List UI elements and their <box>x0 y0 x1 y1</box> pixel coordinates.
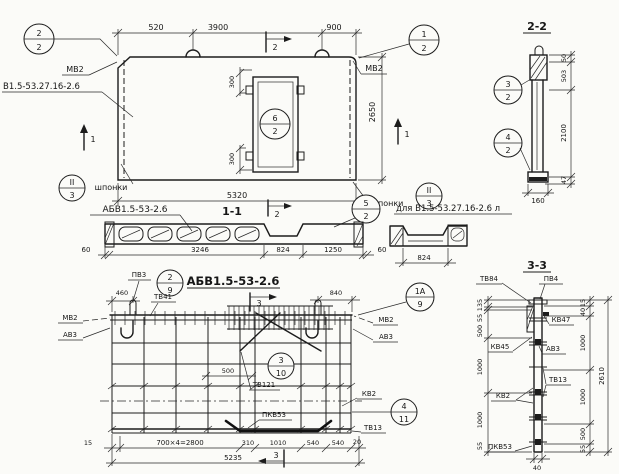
dim-47: 47 <box>560 176 568 184</box>
label-av3-left: АВ3 <box>63 331 77 339</box>
callout-top: II <box>70 178 75 187</box>
dim-left-135: 135 <box>476 299 484 311</box>
callout-bottom: 11 <box>399 415 409 424</box>
callout-1a-9: 1А 9 <box>358 283 434 315</box>
callout-1-2: 1 2 <box>359 25 439 58</box>
label-av3: АВ3 <box>546 345 560 353</box>
cut-mark-2-bottom: 2 <box>268 200 292 219</box>
callout-3-10: 3 10 <box>268 353 294 379</box>
callout-top: 1 <box>421 30 426 39</box>
section-1-1: АБВ1.5-53-2.6 1-1 5 2 для В1.5-53.27.16-… <box>82 195 512 267</box>
dim-left-1000a: 1000 <box>476 359 484 376</box>
label-kv2: КВ2 <box>496 392 510 400</box>
label-pv3: ПВ3 <box>132 271 147 279</box>
section-3-3-title: 3-3 <box>527 259 547 272</box>
dim-500: 500 <box>222 367 234 375</box>
dim-300-bottom: 300 <box>228 153 236 165</box>
label-tv13: ТВ13 <box>548 376 567 384</box>
label-av3-right: АВ3 <box>379 333 393 341</box>
label-kv45: КВ45 <box>491 343 510 351</box>
label-keys-left: шпонки <box>95 183 128 192</box>
dim-left-500: 500 <box>476 325 484 337</box>
dim-right-1000b: 1000 <box>579 389 587 406</box>
callout-bottom: 3 <box>69 191 74 200</box>
label-kv2: КВ2 <box>362 390 376 398</box>
dim-503: 503 <box>560 70 568 82</box>
slab-profile-variant <box>390 225 467 246</box>
callout-4-11: 4 11 <box>352 399 417 425</box>
cut-mark-2-top: 2 <box>266 32 292 52</box>
dim-310: 310 <box>242 439 254 447</box>
callout-top: 3 <box>278 356 283 365</box>
dim-left-55b: 55 <box>476 442 484 450</box>
dim-50: 50 <box>560 54 568 62</box>
dim-460: 460 <box>116 289 128 297</box>
drawing-sheet: 520 3900 900 2 2 1 1 <box>0 0 619 474</box>
engineering-drawing: 520 3900 900 2 2 1 1 <box>0 0 619 474</box>
label-product-mark: В1.5-53.27.16-2.6 <box>3 82 80 92</box>
elevation-title: АБВ1.5-53-2.6 <box>187 274 280 288</box>
lifting-loop-icon <box>315 50 329 57</box>
callout-3-2: 3 2 <box>494 76 531 104</box>
label-tv13: ТВ13 <box>363 424 382 432</box>
dim-20: 20 <box>353 438 361 446</box>
label-mv2-left: МВ2 <box>62 314 77 322</box>
label-pkv53: ПКВ53 <box>262 411 286 419</box>
dim-right-40: 40 <box>579 308 587 316</box>
dim-824-variant: 824 <box>417 254 431 262</box>
dim-left-1000b: 1000 <box>476 412 484 429</box>
callout-bottom: 10 <box>276 369 286 378</box>
dim-824: 824 <box>276 246 290 254</box>
dim-right-500: 500 <box>579 428 587 440</box>
label-mv2-right: МВ2 <box>365 64 382 73</box>
dim-1250: 1250 <box>324 246 342 254</box>
cut-label: 2 <box>272 43 277 52</box>
callout-bottom: 2 <box>36 43 41 52</box>
callout-top: 3 <box>505 80 510 89</box>
dim-300-top: 300 <box>228 76 236 88</box>
cut-label: 1 <box>90 135 95 144</box>
label-tv84: ТВ84 <box>479 275 499 283</box>
dim-5320: 5320 <box>227 191 247 200</box>
plan-view: 520 3900 900 2 2 1 1 <box>2 23 442 219</box>
lifting-loop-icon <box>186 50 200 57</box>
variant-label: для В1.5-53.27.16-2.6 л <box>396 204 500 214</box>
dim-right-1000a: 1000 <box>579 335 587 352</box>
callout-bottom: 9 <box>417 300 422 309</box>
dim-right-15: 15 <box>579 299 587 307</box>
label-pv4: ПВ4 <box>544 275 559 283</box>
cut-label: 3 <box>273 451 278 460</box>
callout-bottom: 2 <box>505 146 510 155</box>
opening: 6 2 300 300 <box>228 67 304 174</box>
cut-mark-3-bottom: 3 <box>258 450 284 467</box>
callout-top: 2 <box>167 273 172 282</box>
cut-mark-1-right: 1 <box>394 118 410 144</box>
callout-bottom: 2 <box>421 44 426 53</box>
panel-outline <box>118 57 356 180</box>
reinforcement-elevation: АБВ1.5-53-2.6 ПВ3 2 9 ТВ41 460 840 МВ2 А… <box>58 270 434 467</box>
dim-540-b: 540 <box>332 439 344 447</box>
callout-top: 5 <box>363 199 368 208</box>
dim-3900: 3900 <box>208 23 228 32</box>
cut-label: 1 <box>404 130 409 139</box>
dim-5235: 5235 <box>224 454 242 462</box>
dim-520: 520 <box>148 23 163 32</box>
callout-top: 4 <box>401 402 406 411</box>
section-1-1-title: 1-1 <box>222 205 242 218</box>
dim-15: 15 <box>84 439 92 447</box>
section-2-2: 2-2 50 503 2100 47 160 3 2 <box>494 20 575 205</box>
dim-60-right: 60 <box>378 246 387 254</box>
dim-160: 160 <box>531 197 544 205</box>
dim-1010: 1010 <box>270 439 287 447</box>
cut-mark-1-left: 1 <box>80 124 96 150</box>
dim-left-55a: 55 <box>476 314 484 322</box>
label-pkv53: ПКВ53 <box>488 443 512 451</box>
dim-2650: 2650 <box>368 102 377 122</box>
dim-900: 900 <box>326 23 341 32</box>
dim-40: 40 <box>533 464 541 472</box>
callout-bottom: 2 <box>272 127 277 136</box>
label-mv2-left: МВ2 <box>66 65 83 74</box>
cut-label: 2 <box>274 210 279 219</box>
callout-4-2: 4 2 <box>494 129 530 170</box>
label-tv41: ТВ41 <box>153 293 172 301</box>
section-2-2-title: 2-2 <box>527 20 547 33</box>
dim-2100: 2100 <box>560 124 568 142</box>
edge-member <box>527 298 549 452</box>
dim-2610: 2610 <box>598 367 606 385</box>
callout-top: 1А <box>415 287 426 296</box>
callout-top: II <box>427 186 432 195</box>
slab-profile <box>105 222 363 247</box>
dim-60-left: 60 <box>82 246 91 254</box>
callout-top: 4 <box>505 133 510 142</box>
callout-top: 6 <box>272 114 277 123</box>
callout-bottom: 2 <box>505 93 510 102</box>
section-1-1-label: АБВ1.5-53-2.6 <box>102 205 167 215</box>
dim-540-a: 540 <box>307 439 319 447</box>
keys-callout-left: II 3 шпонки <box>59 164 133 201</box>
dim-right-55: 55 <box>579 445 587 453</box>
label-tv121: ТВ121 <box>252 381 275 389</box>
label-kv47: КВ47 <box>552 316 571 324</box>
dim-840: 840 <box>330 289 342 297</box>
label-mv2-right: МВ2 <box>378 316 393 324</box>
dim-3246: 3246 <box>191 246 209 254</box>
dim-700x4: 700×4=2800 <box>156 439 203 447</box>
cut-label: 3 <box>256 299 261 308</box>
callout-2-2: 2 2 <box>24 24 117 56</box>
callout-bottom: 2 <box>363 212 368 221</box>
lifting-loop-icon <box>121 300 136 338</box>
section-3-3: 3-3 ТВ84 ПВ4 135 55 500 1000 1000 55 <box>476 259 612 472</box>
callout-top: 2 <box>36 29 41 38</box>
